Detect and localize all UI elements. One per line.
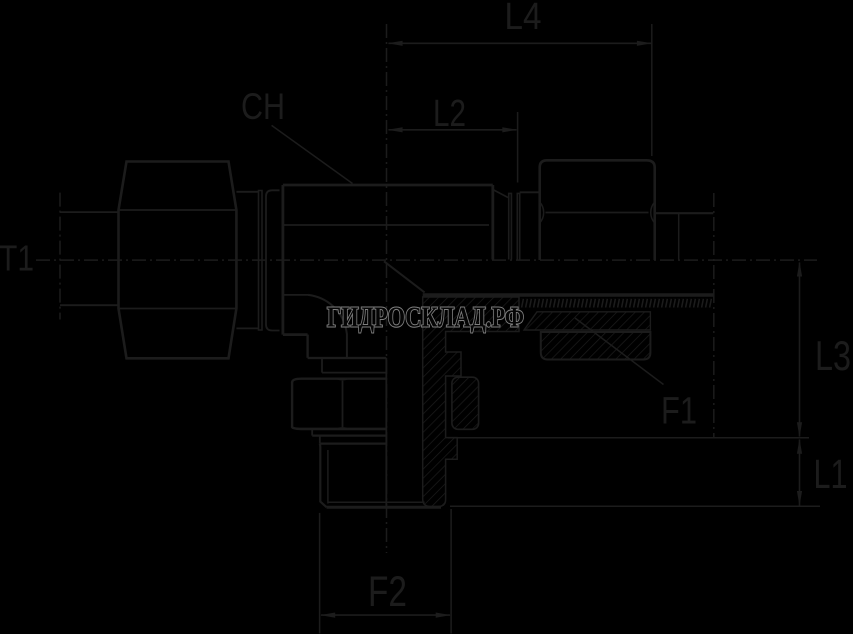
svg-text:L1: L1	[814, 451, 848, 497]
svg-text:L3: L3	[815, 332, 851, 379]
svg-text:ГИДРОСКЛАД.РФ: ГИДРОСКЛАД.РФ	[327, 303, 524, 334]
svg-text:L2: L2	[433, 93, 466, 135]
svg-text:F2: F2	[368, 568, 407, 616]
svg-text:L4: L4	[505, 0, 542, 38]
svg-text:T1: T1	[0, 238, 34, 279]
svg-text:CH: CH	[241, 86, 285, 127]
svg-text:F1: F1	[661, 391, 697, 433]
